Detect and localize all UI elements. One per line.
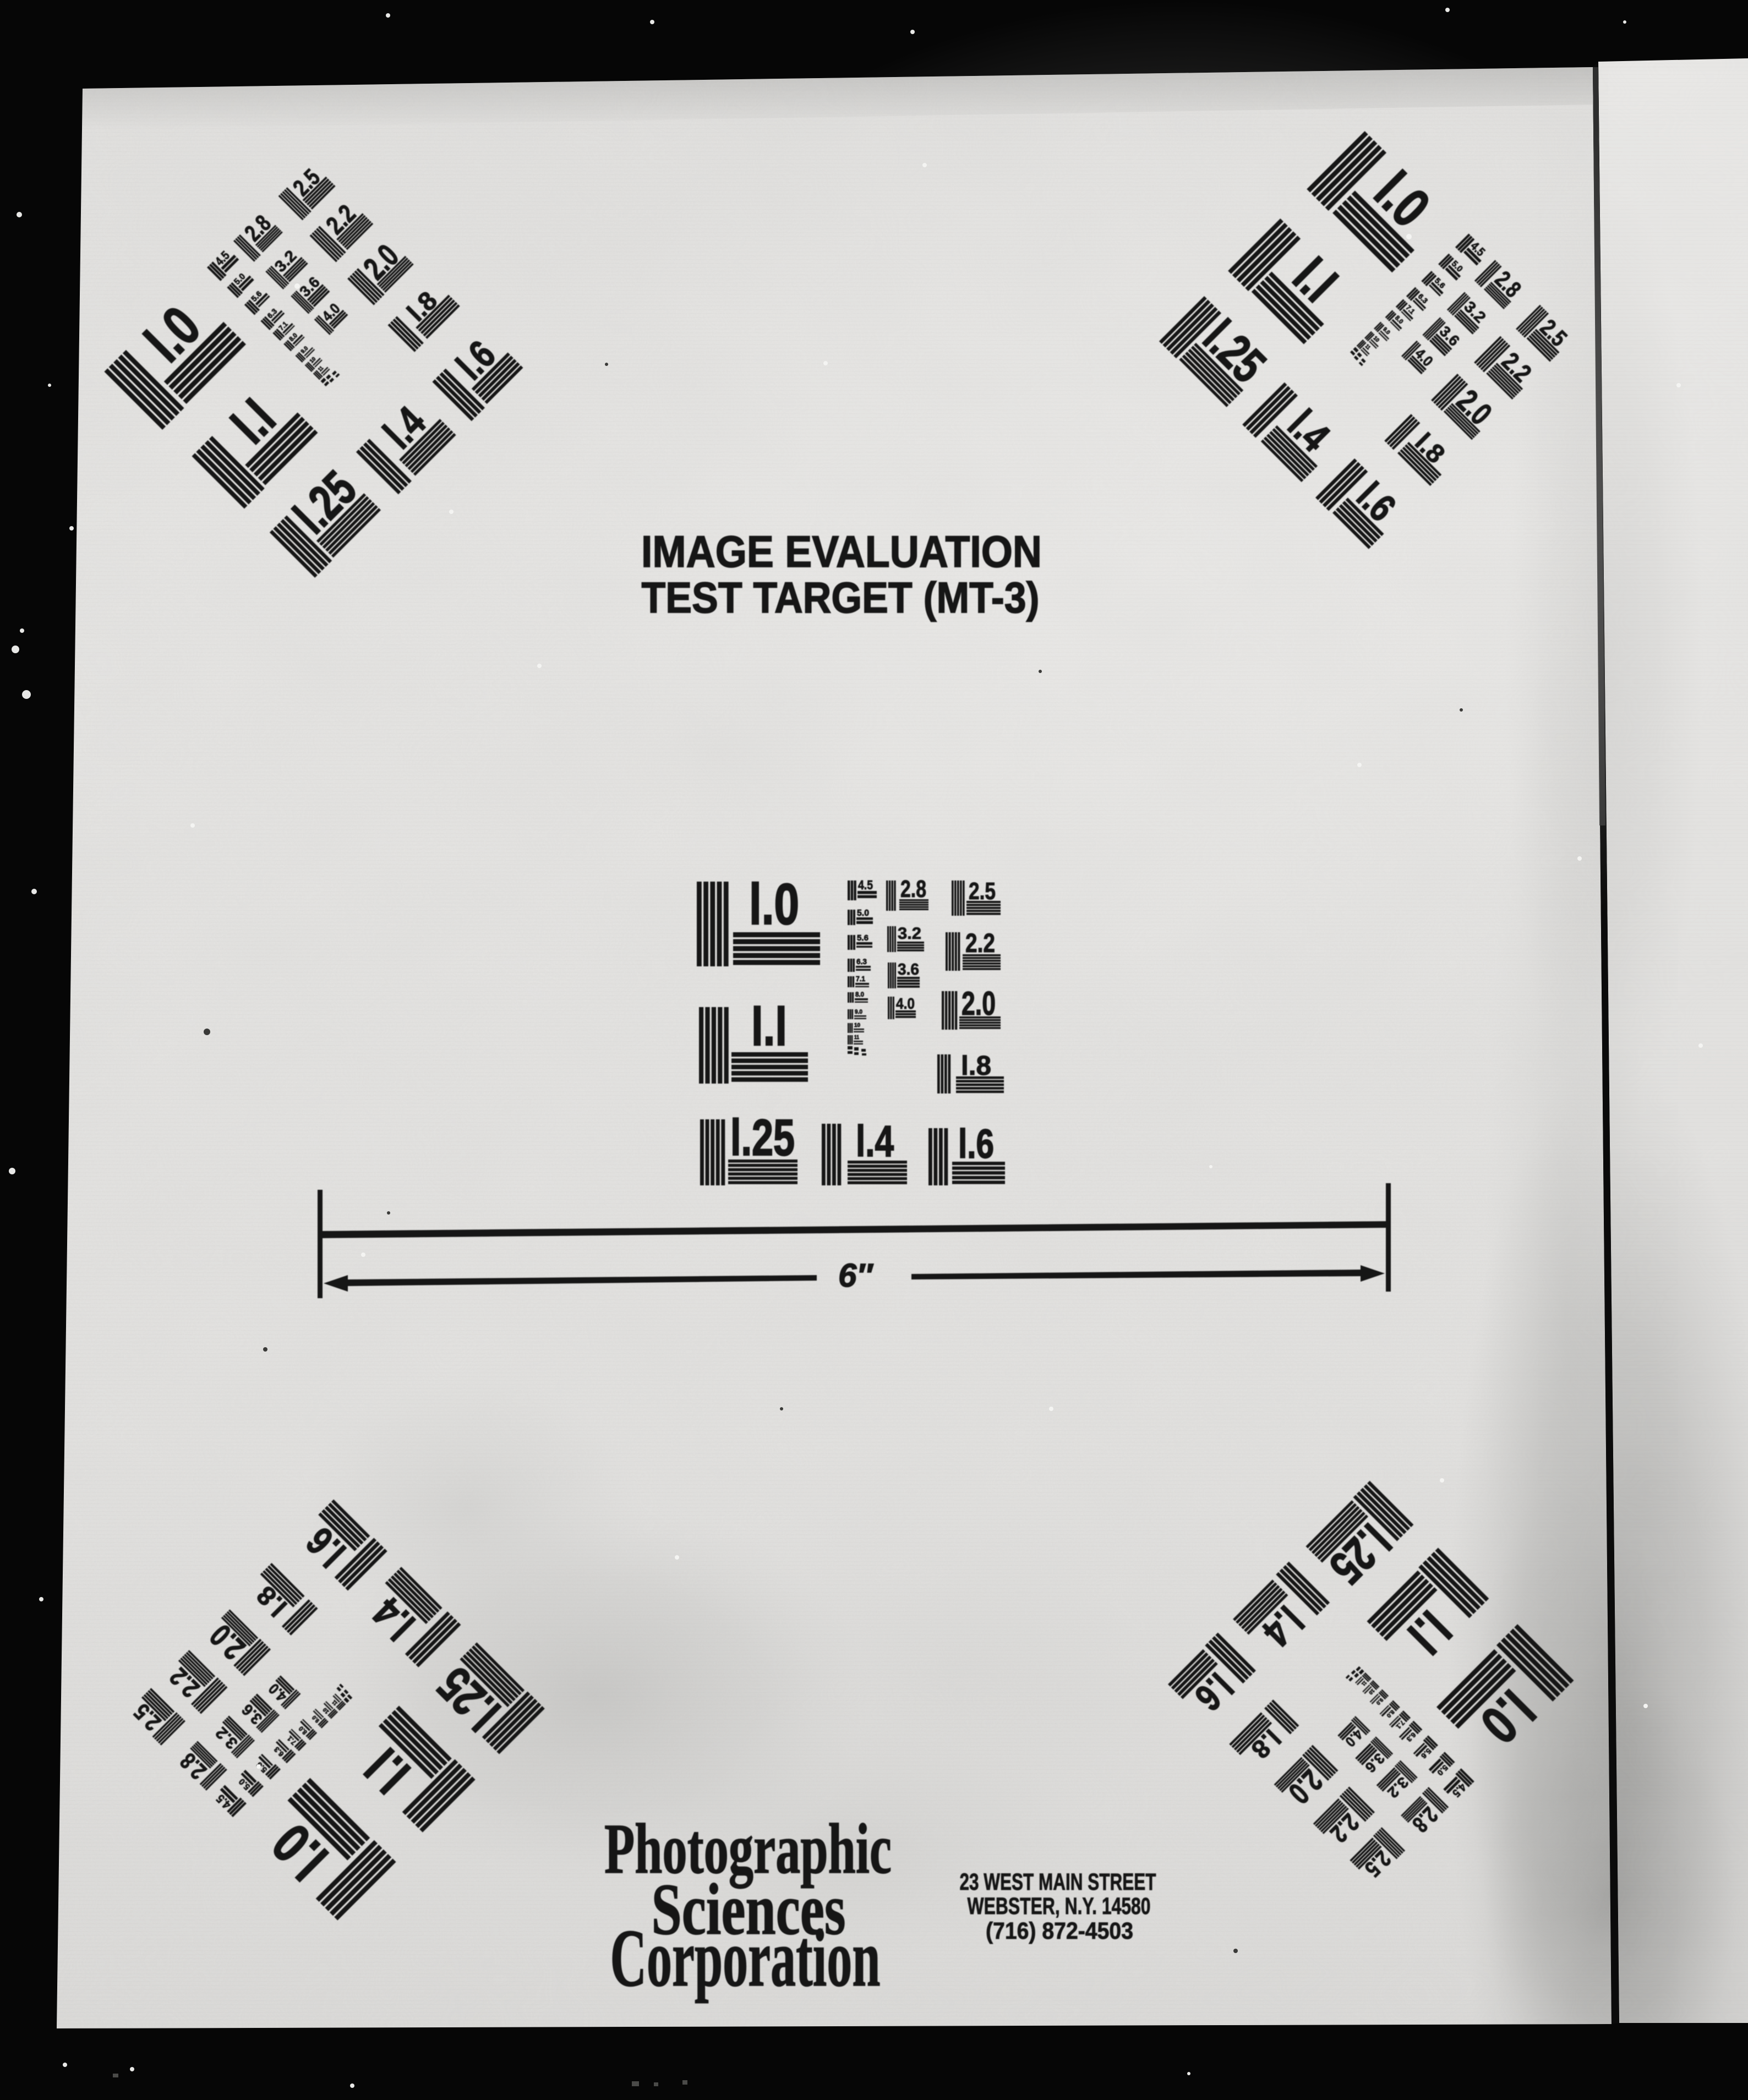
svg-text:TEST TARGET (MT-3): TEST TARGET (MT-3) (642, 573, 1040, 622)
svg-text:(716) 872-4503: (716) 872-4503 (986, 1918, 1133, 1944)
svg-text:WEBSTER, N.Y. 14580: WEBSTER, N.Y. 14580 (968, 1893, 1151, 1919)
svg-text:Corporation: Corporation (610, 1913, 881, 2004)
svg-text:IMAGE EVALUATION: IMAGE EVALUATION (641, 527, 1042, 577)
svg-text:23 WEST MAIN STREET: 23 WEST MAIN STREET (960, 1869, 1156, 1895)
svg-text:6″: 6″ (838, 1257, 873, 1294)
